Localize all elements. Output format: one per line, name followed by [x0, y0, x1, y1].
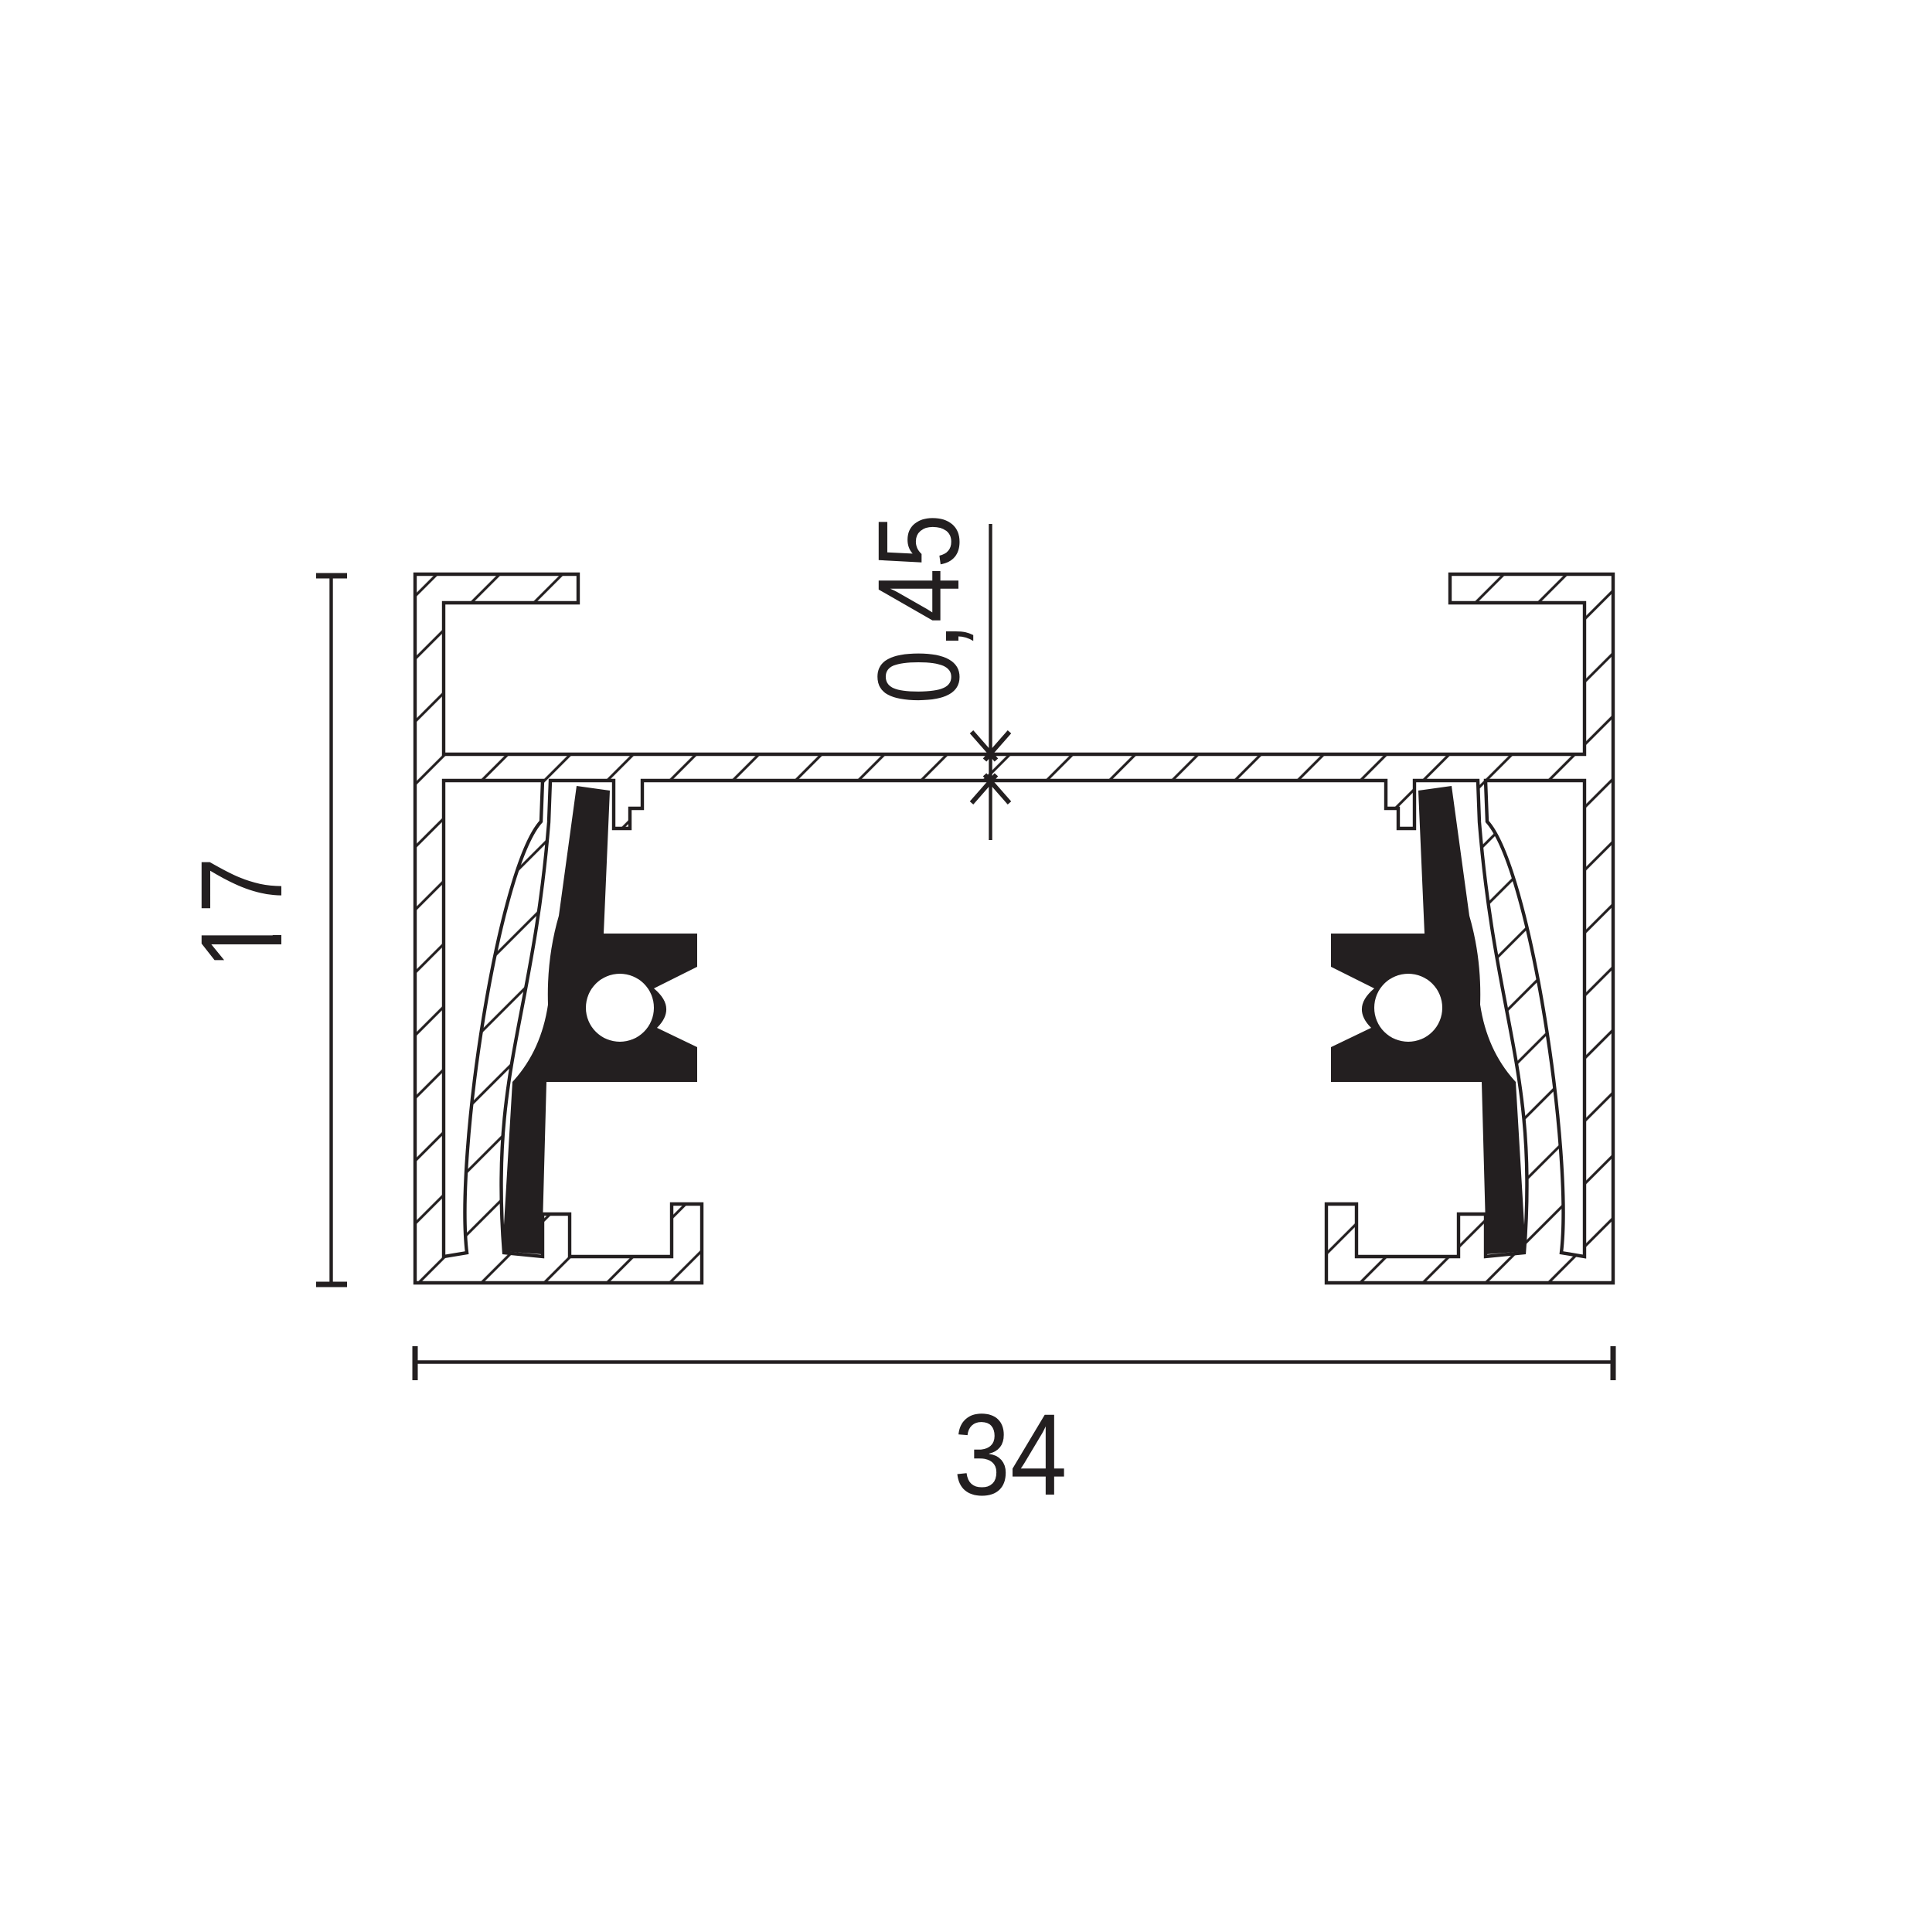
- svg-text:34: 34: [954, 1389, 1067, 1519]
- svg-text:17: 17: [176, 857, 306, 970]
- svg-text:0,45: 0,45: [853, 514, 983, 704]
